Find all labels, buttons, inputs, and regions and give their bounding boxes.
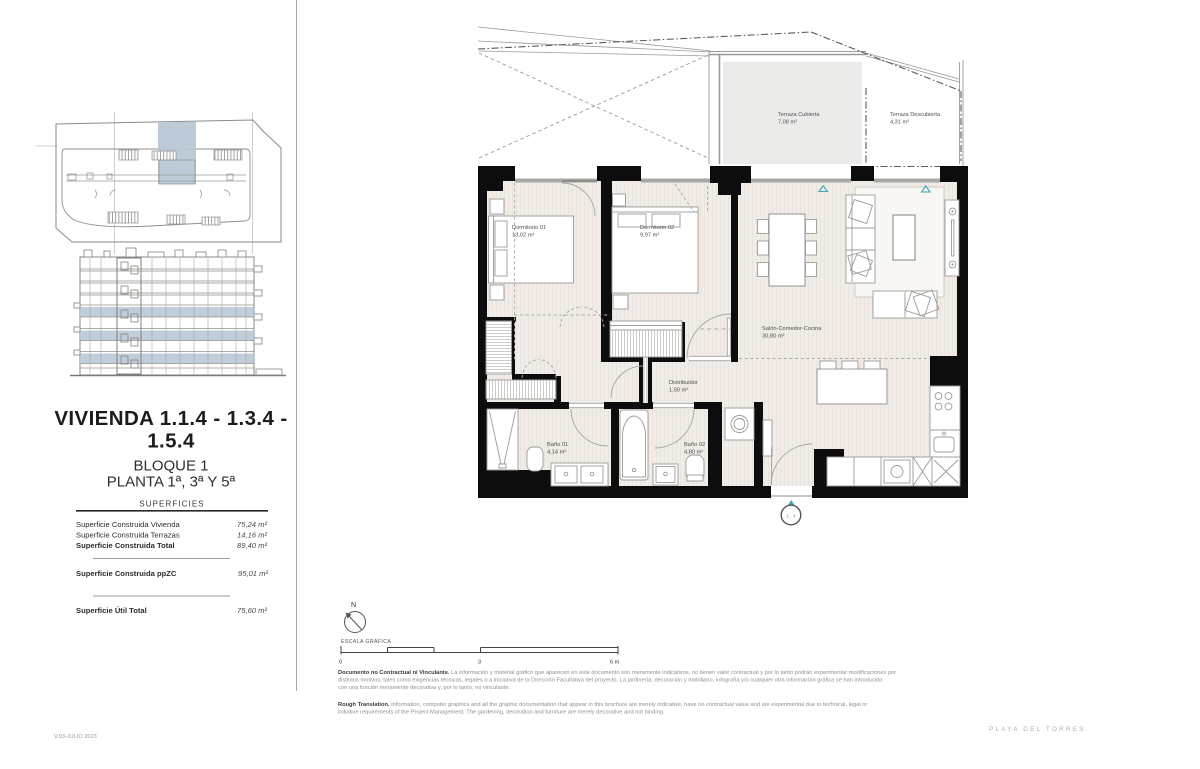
svg-text:ESCALA GRÁFICA: ESCALA GRÁFICA <box>341 638 391 645</box>
svg-text:Superficie Útil Total: Superficie Útil Total <box>76 606 147 615</box>
svg-text:initiative requirements of the: initiative requirements of the Project M… <box>338 710 665 716</box>
svg-text:30,80 m²: 30,80 m² <box>762 334 785 340</box>
svg-text:7,08 m²: 7,08 m² <box>778 120 797 126</box>
svg-text:Superficie Construida Vivienda: Superficie Construida Vivienda <box>76 520 180 529</box>
svg-text:N: N <box>351 602 356 609</box>
svg-text:PLANTA 1ª, 3ª Y 5ª: PLANTA 1ª, 3ª Y 5ª <box>107 474 236 491</box>
svg-text:75,24 m²: 75,24 m² <box>237 520 267 529</box>
svg-text:Documento no Contractual ni Vi: Documento no Contractual ni Vinculante. … <box>338 670 896 676</box>
svg-text:Salón-Comedor-Cocina: Salón-Comedor-Cocina <box>762 326 822 332</box>
svg-text:VIVIENDA 1.1.4 - 1.3.4 -: VIVIENDA 1.1.4 - 1.3.4 - <box>54 407 287 430</box>
svg-text:V.03-JULIO 2023: V.03-JULIO 2023 <box>54 734 97 740</box>
svg-text:Superficie Construida ppZC: Superficie Construida ppZC <box>76 569 177 578</box>
svg-text:Superficie Construida Total: Superficie Construida Total <box>76 541 175 550</box>
svg-text:3: 3 <box>478 660 481 666</box>
svg-text:PLAYA DEL TORRES: PLAYA DEL TORRES <box>989 726 1086 733</box>
svg-text:89,40 m²: 89,40 m² <box>237 541 267 550</box>
svg-text:distintos motivos, tales como: distintos motivos, tales como exigencias… <box>338 678 882 684</box>
svg-text:Terraza Cubierta: Terraza Cubierta <box>778 112 820 118</box>
svg-text:1,50 m²: 1,50 m² <box>669 388 688 394</box>
svg-text:75,60 m²: 75,60 m² <box>237 606 267 615</box>
svg-text:4,80 m²: 4,80 m² <box>684 450 703 456</box>
svg-text:BLOQUE 1: BLOQUE 1 <box>133 458 208 475</box>
svg-text:Terraza Descubierta: Terraza Descubierta <box>890 112 941 118</box>
svg-text:Distribuidor: Distribuidor <box>669 380 698 386</box>
svg-text:4,31 m²: 4,31 m² <box>890 120 909 126</box>
svg-text:Rough Translation. Information: Rough Translation. Information, computer… <box>338 702 867 708</box>
svg-text:Baño 02: Baño 02 <box>684 442 705 448</box>
svg-text:9,97 m²: 9,97 m² <box>640 233 659 239</box>
svg-text:1 . 4: 1 . 4 <box>787 514 796 519</box>
svg-text:4,14 m²: 4,14 m² <box>547 450 566 456</box>
svg-text:Dormitorio 01: Dormitorio 01 <box>512 225 546 231</box>
svg-text:1.5.4: 1.5.4 <box>147 430 195 453</box>
svg-text:Dormitorio 02: Dormitorio 02 <box>640 225 674 231</box>
svg-text:0: 0 <box>339 660 342 666</box>
svg-text:13,02 m²: 13,02 m² <box>512 233 535 239</box>
svg-text:14,16 m²: 14,16 m² <box>237 531 267 540</box>
svg-text:con una función meramente deco: con una función meramente decorativa y, … <box>338 685 511 691</box>
svg-text:6 m: 6 m <box>610 660 620 666</box>
svg-text:95,01 m²: 95,01 m² <box>238 569 268 578</box>
svg-text:SUPERFICIES: SUPERFICIES <box>139 500 204 509</box>
svg-text:Baño 01: Baño 01 <box>547 442 568 448</box>
svg-text:Superficie Construida Terrazas: Superficie Construida Terrazas <box>76 531 180 540</box>
